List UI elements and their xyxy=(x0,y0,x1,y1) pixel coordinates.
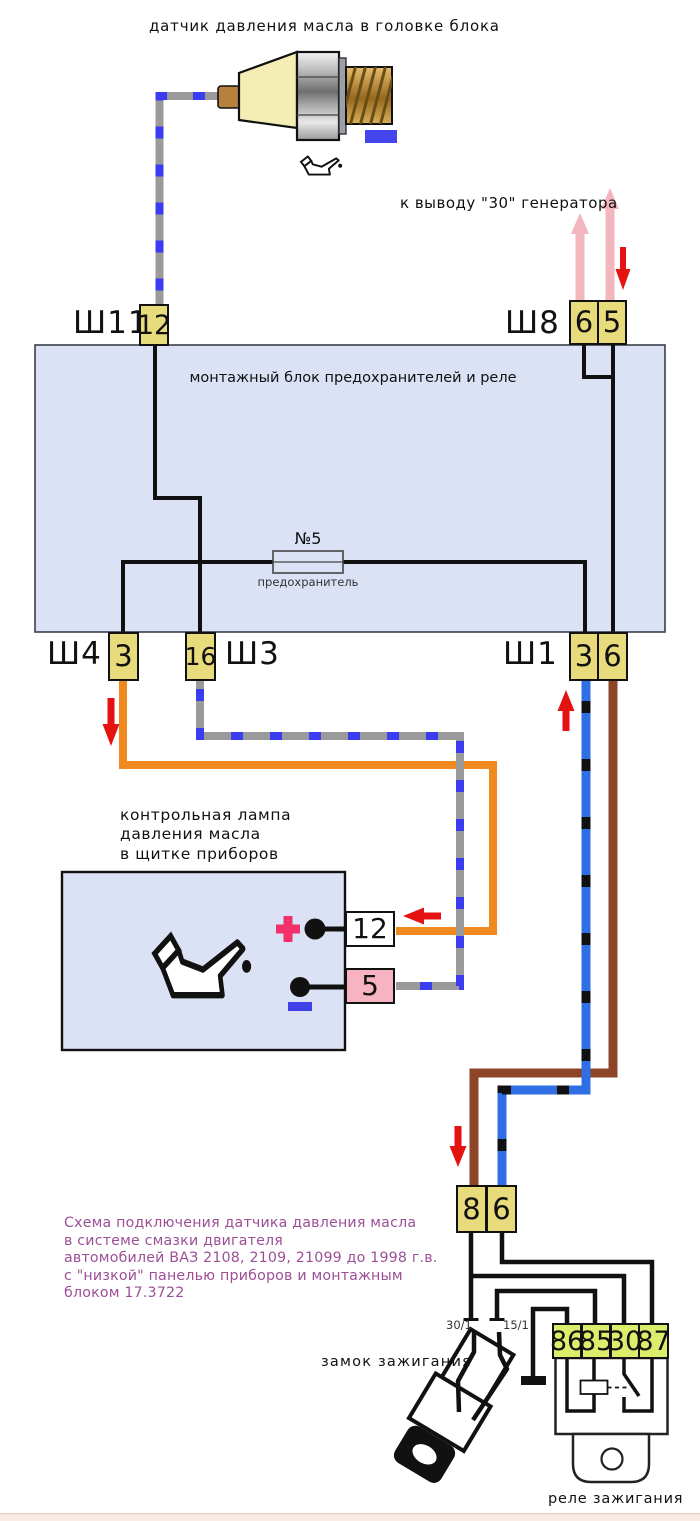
connector-sh1-pin-6: 6 xyxy=(597,632,628,681)
caption-line1: Схема подключения датчика давления масла xyxy=(64,1215,416,1233)
lock-terminal-30-1: 30/1 xyxy=(446,1318,472,1332)
lamp-terminal-5: 5 xyxy=(345,968,395,1004)
image-bottom-strip xyxy=(0,1513,700,1521)
oil-pressure-sensor-illustration xyxy=(218,52,397,175)
generator-label: к выводу "30" генератора xyxy=(400,194,618,212)
ignition-relay-illustration xyxy=(556,1358,668,1482)
fuse-caption: предохранитель xyxy=(248,575,368,589)
minus-symbol xyxy=(288,1002,312,1011)
connector-sh4-pin-3: 3 xyxy=(108,632,139,681)
connector-sh1-pin-3: 3 xyxy=(569,632,599,681)
harness-pin-8: 8 xyxy=(456,1185,487,1233)
caption-line5: блоком 17.3722 xyxy=(64,1285,184,1303)
lamp-terminal-12: 12 xyxy=(345,911,395,947)
relay-pin-86: 86 xyxy=(552,1323,582,1359)
lamp-box xyxy=(62,872,345,1050)
wiring-diagram: датчик давления масла в головке блока к … xyxy=(0,0,700,1521)
block-title: монтажный блок предохранителей и реле xyxy=(160,370,546,386)
blue-mark xyxy=(365,130,397,143)
fuse-symbol xyxy=(273,551,343,573)
connector-sh4-label: Ш4 xyxy=(47,639,102,670)
caption-line3: автомобилей ВАЗ 2108, 2109, 21099 до 199… xyxy=(64,1250,437,1268)
caption-line2: в системе смазки двигателя xyxy=(64,1233,283,1251)
ground-symbol xyxy=(521,1376,546,1385)
relay-pin-85: 85 xyxy=(581,1323,611,1359)
harness-pin-6: 6 xyxy=(486,1185,517,1233)
ignition-lock-label: замок зажигания xyxy=(321,1354,472,1370)
caption-line4: с "низкой" панелью приборов и монтажным xyxy=(64,1268,403,1286)
blue-black-wire xyxy=(502,681,586,1185)
relay-pin-87: 87 xyxy=(638,1323,669,1359)
connector-sh3-label: Ш3 xyxy=(225,639,280,670)
fuse-number: №5 xyxy=(273,529,343,548)
connector-sh11-pin-12: 12 xyxy=(139,304,169,346)
lamp-label-line3: в щитке приборов xyxy=(120,845,279,865)
relay-coil xyxy=(581,1381,608,1395)
oil-can-icon-small xyxy=(301,156,342,174)
connector-sh3-pin-16: 16 xyxy=(185,632,216,681)
sensor-title: датчик давления масла в головке блока xyxy=(149,17,500,35)
gray-blue-wire-sensor xyxy=(160,96,220,306)
lamp-label-line2: давления масла xyxy=(120,825,261,845)
connector-sh1-label: Ш1 xyxy=(503,639,558,670)
lamp-label-line1: контрольная лампа xyxy=(120,806,291,826)
ignition-relay-label: реле зажигания xyxy=(548,1491,672,1507)
connector-sh8-label: Ш8 xyxy=(505,308,560,339)
connector-sh8-pin-5: 5 xyxy=(597,300,627,345)
connector-sh8-pin-6: 6 xyxy=(569,300,599,345)
lock-terminal-15-1: 15/1 xyxy=(503,1318,529,1332)
